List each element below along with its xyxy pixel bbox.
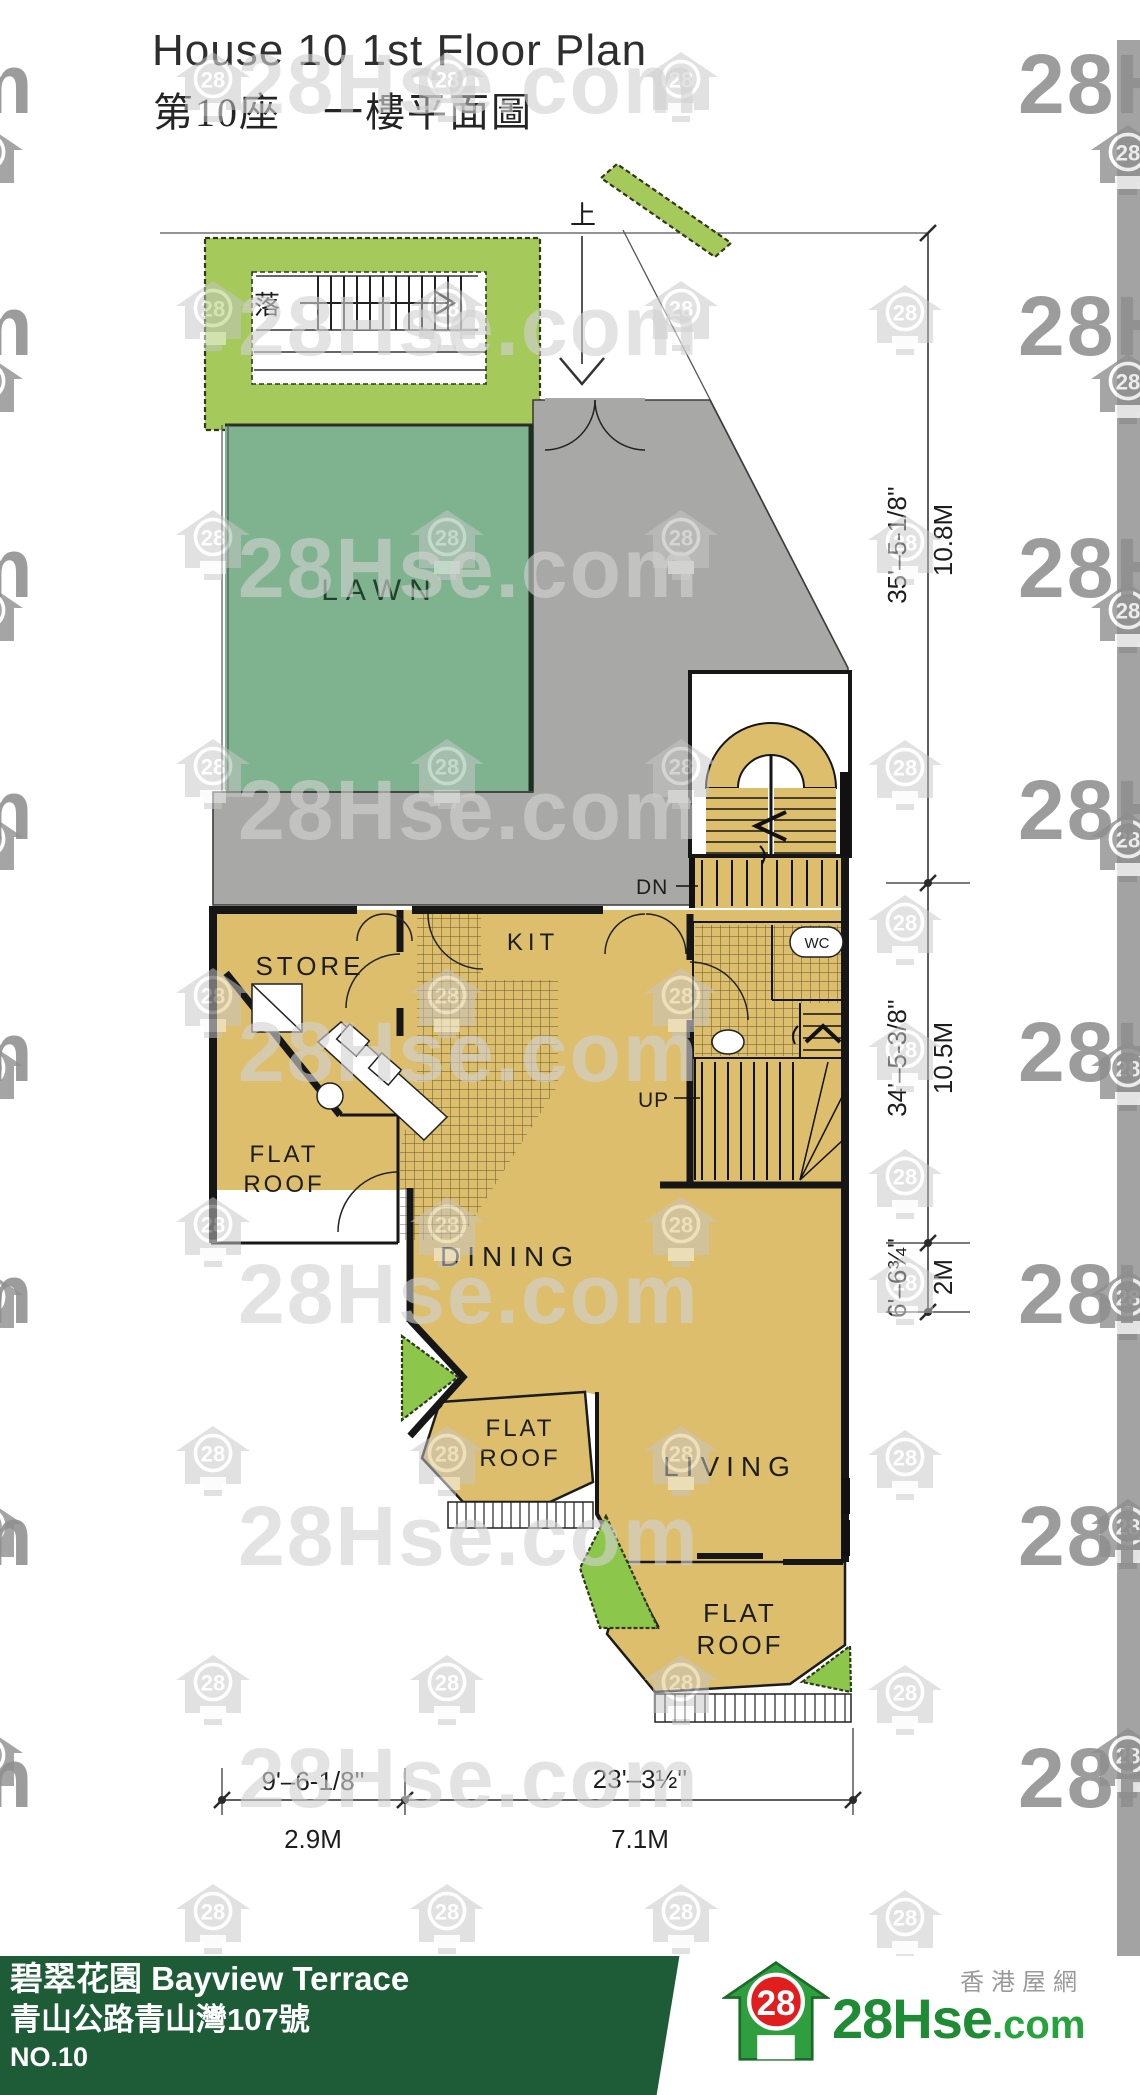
page-title: House 10 1st Floor Plan	[152, 26, 647, 76]
north-label: 上	[570, 200, 596, 230]
up-label: UP	[638, 1089, 669, 1112]
lawn-label: LAWN	[321, 574, 439, 607]
dimension-right	[886, 225, 970, 1320]
logo-house-icon: 28	[722, 1960, 830, 2062]
hedge-diagonal	[601, 164, 731, 257]
page-title-chinese: 第10座 一樓平面圖	[153, 80, 533, 138]
store-label: STORE	[255, 951, 364, 981]
footer-text: 碧翠花園 Bayview Terrace 青山公路青山灣107號 NO.10	[10, 1958, 409, 2074]
dim-right-1-ft: 35'–5-1/8''	[882, 486, 912, 604]
entry-garden	[205, 238, 540, 430]
dim-bottom-2-m: 7.1M	[611, 1824, 669, 1854]
floor-plan-page: House 10 1st Floor Plan 第10座 一樓平面圖 上	[0, 0, 1140, 2095]
dim-right-3-m: 2M	[928, 1259, 958, 1295]
estate-address: 青山公路青山灣107號	[10, 2000, 409, 2040]
stair-descend-label: 落	[254, 290, 280, 320]
lawn-area	[222, 425, 533, 792]
logo-tagline: 香港屋網	[960, 1962, 1084, 1997]
dim-bottom-2-ft: 23'–3½''	[593, 1764, 687, 1794]
svg-text:ROOF: ROOF	[696, 1630, 783, 1660]
svg-text:FLAT: FLAT	[703, 1598, 777, 1628]
svg-text:ROOF: ROOF	[243, 1171, 324, 1198]
svg-text:28: 28	[757, 1984, 796, 2023]
dim-right-2-ft: 34'–5-3/8''	[882, 999, 912, 1117]
dim-right-1-m: 10.8M	[928, 504, 958, 576]
dim-bottom-1-m: 2.9M	[284, 1824, 342, 1854]
estate-name: 碧翠花園 Bayview Terrace	[10, 1958, 409, 2000]
floor-plan-drawing: 上 落	[0, 0, 1140, 1956]
footer-banner: 碧翠花園 Bayview Terrace 青山公路青山灣107號 NO.10 2…	[0, 1956, 1140, 2095]
dn-label: DN	[636, 876, 668, 899]
living-label: LIVING	[663, 1451, 797, 1482]
logo-suffix-text: .com	[992, 2003, 1085, 2047]
estate-name-en: Bayview Terrace	[151, 1960, 409, 1997]
stair-enclosure	[690, 672, 850, 864]
dim-bottom-1-ft: 9'–6-1/8''	[261, 1766, 364, 1796]
wc-label: WC	[805, 935, 830, 952]
svg-text:ROOF: ROOF	[479, 1445, 560, 1472]
dining-label: DINING	[440, 1241, 580, 1272]
svg-text:FLAT: FLAT	[250, 1141, 319, 1168]
dim-right-2-m: 10.5M	[928, 1022, 958, 1094]
house-number: NO.10	[10, 2040, 409, 2075]
site-logo: 28 28Hse.com 香港屋網	[714, 1958, 1134, 2093]
svg-text:FLAT: FLAT	[486, 1415, 555, 1442]
estate-name-zh: 碧翠花園	[10, 1960, 142, 1997]
dim-right-3-ft: 6'–6¾''	[882, 1238, 912, 1318]
kitchen-label: KIT	[507, 929, 559, 956]
